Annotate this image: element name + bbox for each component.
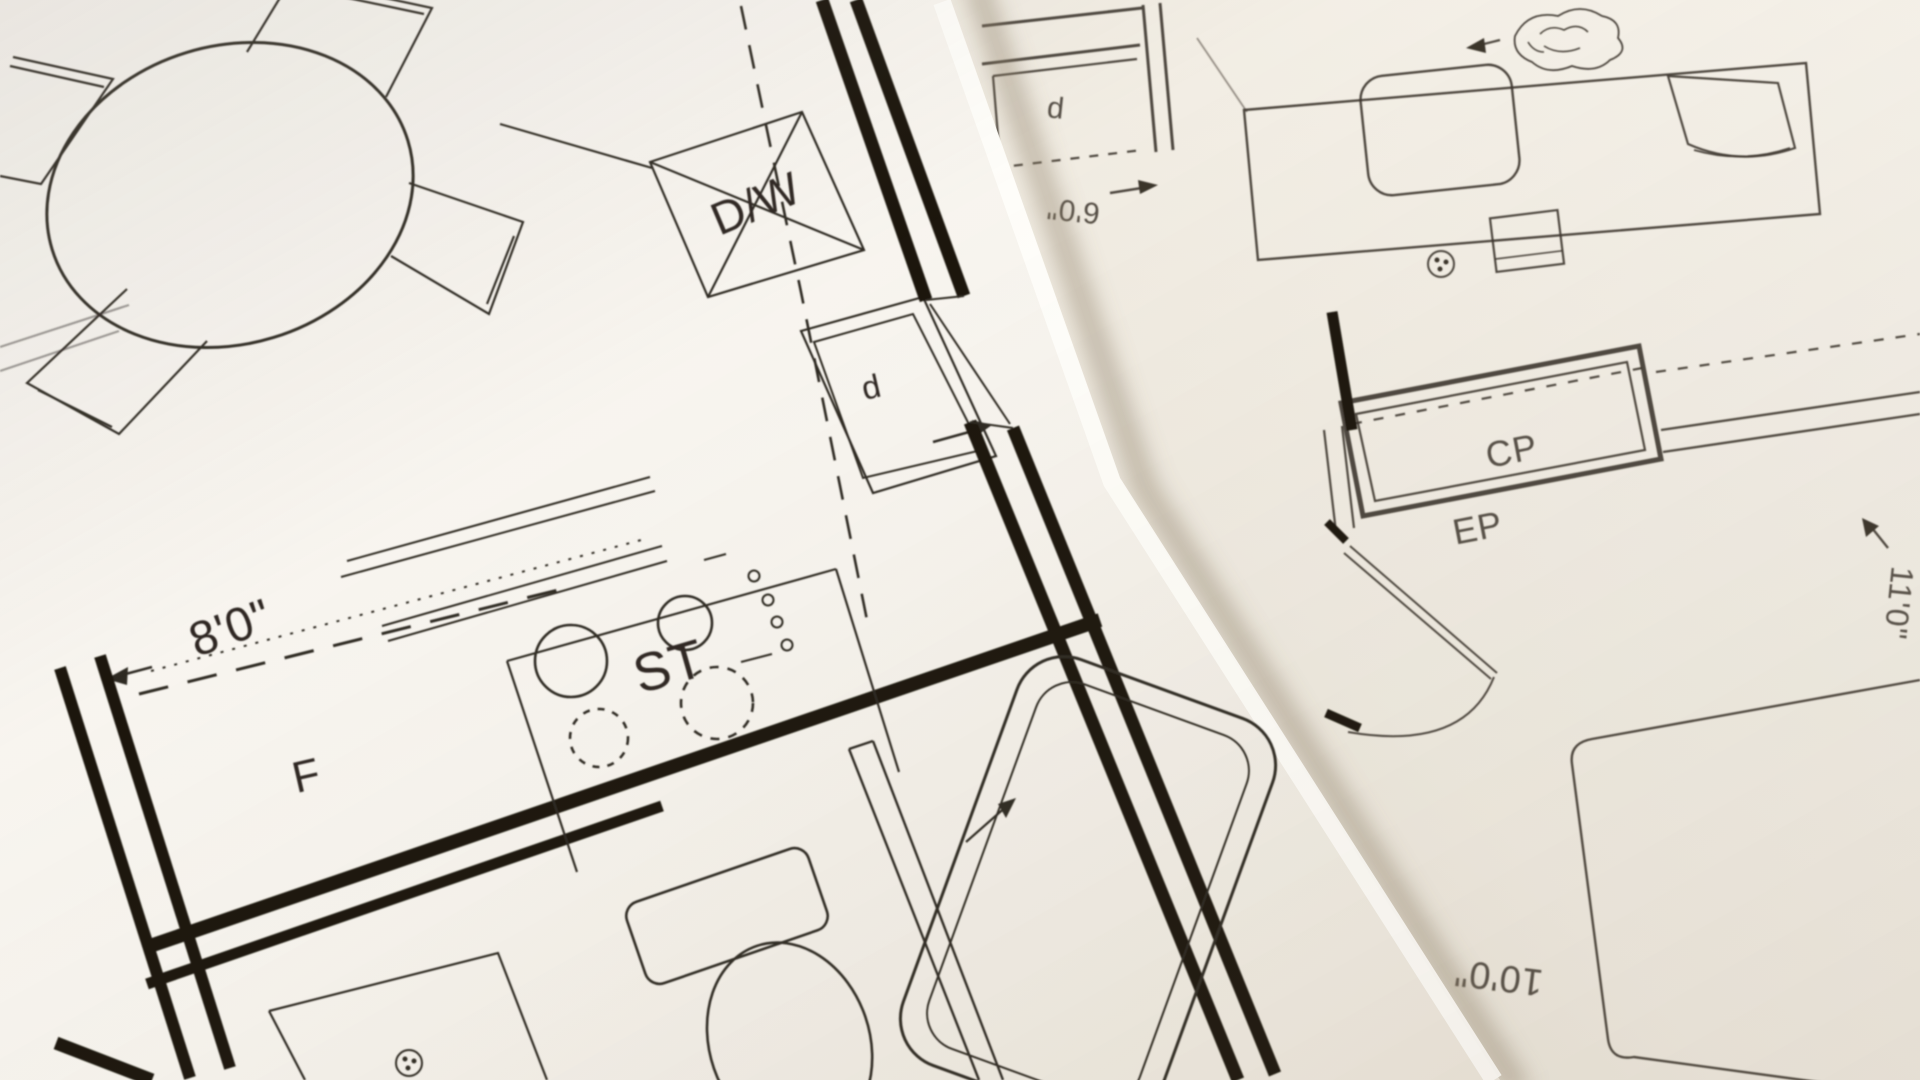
blueprint-photo: d 6'0": [0, 0, 1920, 1080]
photo-vignette: [0, 0, 1920, 1080]
